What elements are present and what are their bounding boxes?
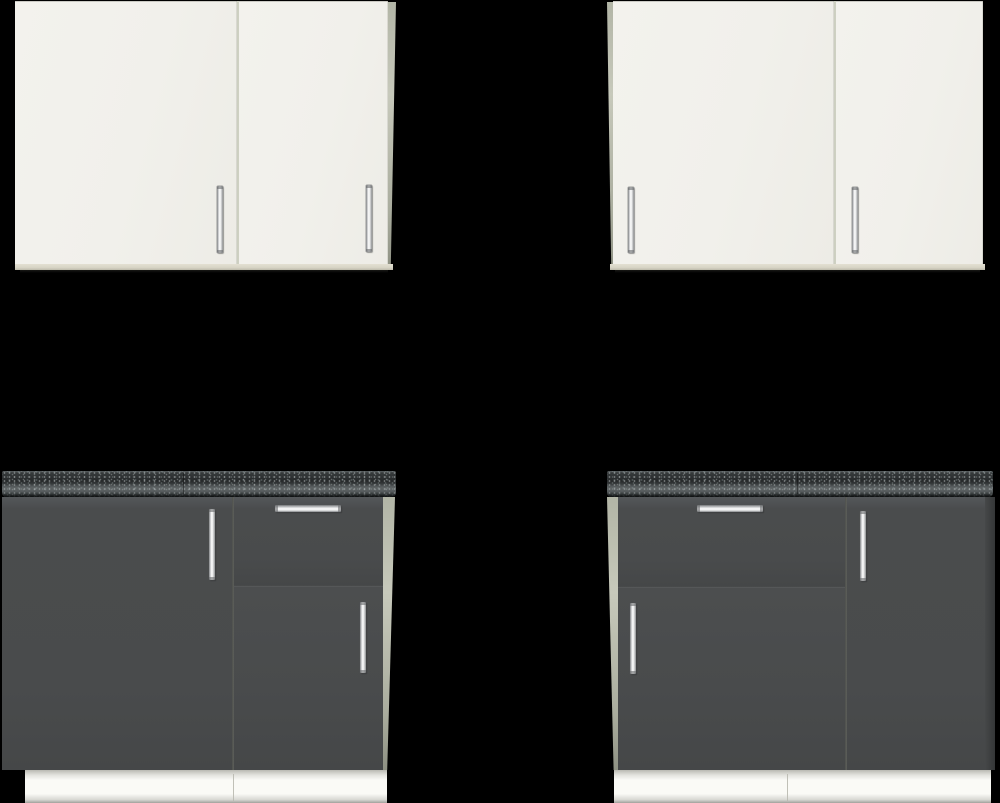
- wall-cabinet-left-door-left: [15, 1, 237, 264]
- base-cabinet-left-door-large: [2, 497, 232, 770]
- wall-cabinet-left-shadow: [20, 270, 388, 273]
- wall-cabinet-right-door-right: [836, 1, 983, 264]
- base-cabinet-right-door-small: [618, 588, 845, 770]
- wall-cabinet-right-handle-left: [628, 187, 634, 253]
- base-cabinet-left-worktop: [2, 471, 396, 497]
- wall-cabinet-right-shadow: [615, 270, 980, 273]
- base-cabinet-right: [600, 465, 1000, 803]
- base-cabinet-left-worktop-seam: [183, 473, 184, 494]
- base-cabinet-left-plinth: [25, 770, 387, 803]
- wall-cabinet-left: [0, 0, 400, 275]
- base-cabinet-right-side-panel-dark: [985, 497, 995, 770]
- wall-cabinet-left-handle-left: [217, 186, 223, 253]
- product-collage: [0, 0, 1000, 803]
- wall-cabinet-right-handle-right: [852, 187, 858, 253]
- base-cabinet-right-door-large: [847, 497, 985, 770]
- base-cabinet-right-worktop: [607, 471, 993, 497]
- base-cabinet-right-handle-drawer: [697, 505, 763, 512]
- base-cabinet-right-side-panel: [607, 497, 618, 770]
- base-cabinet-right-handle-door-large: [860, 511, 866, 581]
- base-cabinet-left-handle-drawer: [275, 505, 341, 512]
- wall-cabinet-left-side-panel: [388, 2, 396, 266]
- base-cabinet-left-side-panel: [383, 497, 395, 770]
- base-cabinet-right-handle-door-small: [630, 603, 636, 674]
- base-cabinet-right-plinth: [614, 770, 991, 803]
- base-cabinet-left-handle-door-small: [360, 602, 366, 673]
- base-cabinet-left-plinth-seam: [233, 774, 234, 801]
- wall-cabinet-right: [600, 0, 1000, 275]
- base-cabinet-left: [0, 465, 400, 803]
- base-cabinet-right-worktop-seam: [797, 473, 798, 494]
- base-cabinet-right-plinth-seam: [787, 774, 788, 801]
- wall-cabinet-right-door-left: [613, 1, 834, 264]
- wall-cabinet-left-handle-right: [366, 185, 372, 252]
- base-cabinet-left-handle-door-large: [209, 509, 215, 580]
